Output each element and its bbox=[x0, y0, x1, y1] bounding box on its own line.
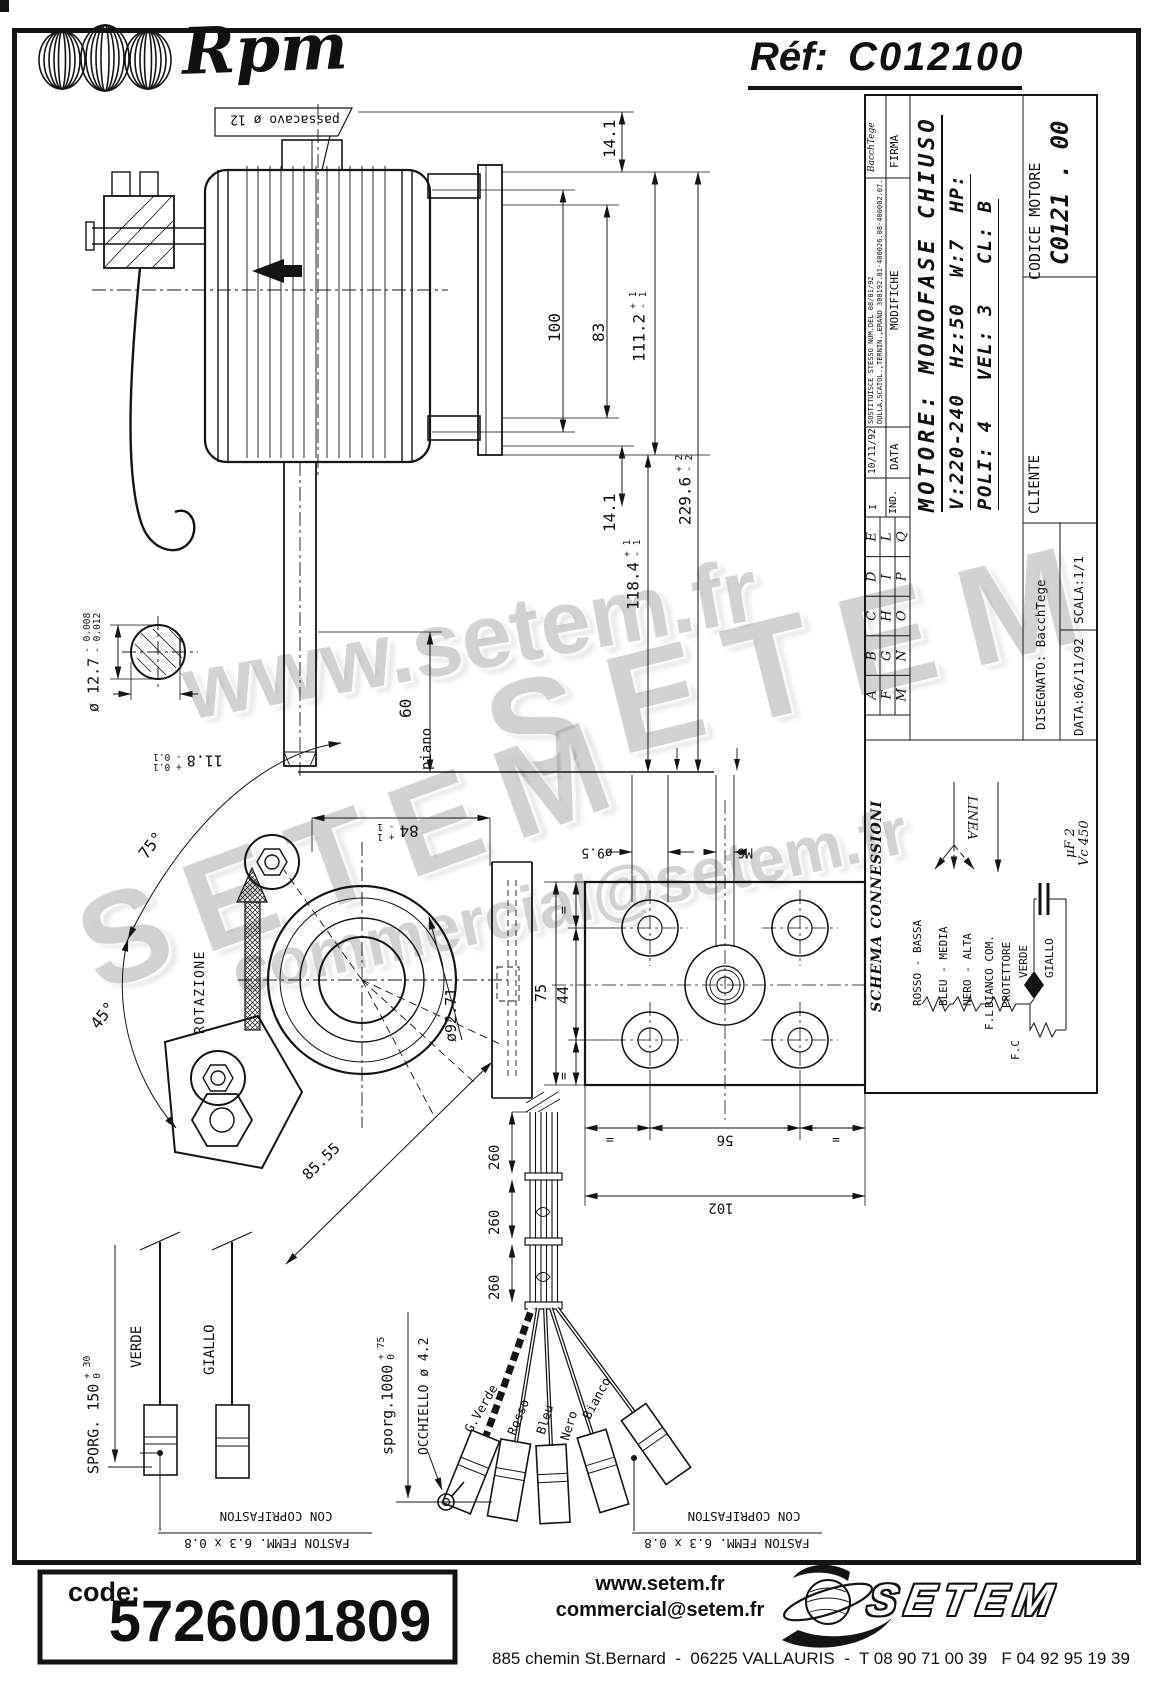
motor-title-line: MOTORE: MONOFASE CHIUSO bbox=[916, 115, 943, 512]
coprifaston-right: CON COPRIFASTON bbox=[664, 1510, 824, 1523]
dim-shaft-flat: 11.8+ 0.1- 0.1 bbox=[140, 750, 236, 770]
modifiche-note-line1: SOSTITUISCE STESSO NUM.DEL 08/01/92 bbox=[867, 180, 876, 424]
rpm-logo-coils bbox=[39, 25, 171, 91]
faston-spec-left: FASTON FEMM. 6.3 x 0.8 bbox=[158, 1537, 376, 1550]
schema-wire-rosso: ROSSO - BASSA bbox=[912, 920, 924, 1006]
footer-address: 885 chemin St.Bernard - 06225 VALLAURIS … bbox=[492, 1650, 1112, 1668]
code-value: 5726001809 bbox=[100, 1592, 440, 1653]
leads-right-bundle bbox=[396, 1092, 822, 1533]
dim-229-6-value: 229.6 bbox=[676, 477, 695, 525]
index-letter: O bbox=[883, 608, 923, 623]
dim-sporg-1000: sporg.1000+ 750 bbox=[378, 1337, 398, 1455]
firma-signature: BacchTege bbox=[868, 122, 877, 172]
dim-102: 102 bbox=[690, 1200, 752, 1215]
rotazione-label: ROTAZIONE bbox=[194, 950, 208, 1034]
disegnato-label: DISEGNATO: BacchTege bbox=[1034, 579, 1047, 730]
schema-title: SCHEMA CONNESSIONI bbox=[870, 800, 885, 1012]
modifiche-note: SOSTITUISCE STESSO NUM.DEL 08/01/92 DULL… bbox=[867, 180, 884, 424]
dim-dia-92-71: ø92.71 bbox=[444, 988, 460, 1042]
footer-email: commercial@setem.fr bbox=[555, 1600, 765, 1621]
schema-verde: VERDE bbox=[1018, 945, 1030, 978]
tol-plus: + 0.1 bbox=[153, 761, 182, 771]
dim-75-plate: 75 bbox=[534, 984, 550, 1002]
occhiello-label: OCCHIELLO ø 4.2 bbox=[418, 1338, 432, 1455]
cliente-label: CLIENTE bbox=[1028, 455, 1043, 514]
dim-84: 84+ 1- 1 bbox=[352, 820, 444, 840]
piano-label: piano bbox=[420, 728, 435, 770]
coprifaston-left: CON COPRIFASTON bbox=[196, 1510, 356, 1523]
ind-value: I bbox=[869, 504, 880, 510]
footer-site: www.setem.fr bbox=[580, 1574, 740, 1595]
tol-minus: - 1 bbox=[639, 292, 649, 309]
schema-protettore: PROTETTORE bbox=[1001, 942, 1013, 1008]
setem-logo-text: SETEM bbox=[864, 1578, 1064, 1624]
dim-118-4: 118.4+ 1- 1 bbox=[624, 540, 644, 610]
tol-minus: - 0.012 bbox=[93, 613, 103, 653]
schema-fl-label: F.L bbox=[984, 1010, 996, 1030]
dim-111-2-value: 111.2 bbox=[630, 314, 649, 362]
faston-spec-right: FASTON FEMM. 6.3 x 0.8 bbox=[618, 1537, 836, 1550]
codice-motore-label: CODICE MOTORE bbox=[1028, 163, 1044, 280]
ind-label: IND. bbox=[889, 490, 900, 514]
firma-label: FIRMA bbox=[889, 135, 901, 168]
dim-m6: M6 bbox=[710, 845, 780, 859]
dim-260-2: 260 bbox=[488, 1210, 503, 1235]
shaft-flat-value: 11.8 bbox=[187, 752, 223, 770]
linea-label: LINEA bbox=[964, 796, 978, 840]
index-letter-grid: E L Q D I P C H O B G N A F M bbox=[865, 517, 910, 715]
capacitor-uf: μF 2 bbox=[1064, 828, 1078, 858]
dim-60: 60 bbox=[398, 699, 415, 718]
tol-minus: - 2 bbox=[685, 455, 695, 472]
schema-wire-bleu: BLEU - MEDIA bbox=[938, 927, 950, 1006]
passacavo-callout: passacavo ø 12 bbox=[226, 112, 344, 126]
eq-mark-right: = bbox=[818, 1132, 854, 1146]
schema-wire-nero: NERO - ALTA bbox=[962, 933, 974, 1006]
wire-label-giallo: GIALLO bbox=[203, 1324, 218, 1375]
dim-260-1: 260 bbox=[488, 1145, 503, 1170]
dim-83: 83 bbox=[591, 323, 608, 342]
schema-fc-label: F.C bbox=[1010, 1040, 1022, 1060]
index-letter: Q bbox=[883, 529, 923, 544]
eq-mark-bottom: = bbox=[558, 1072, 572, 1080]
sporg-1000-value: sporg.1000 bbox=[379, 1365, 397, 1455]
codice-motore-value: C0121 . 00 bbox=[1048, 121, 1073, 266]
technical-drawing-sheet: www.setem.fr SETEM SETEM commercial@sete… bbox=[0, 0, 1154, 1683]
dim-44-plate: 44 bbox=[556, 986, 572, 1004]
motor-spec-line-2: POLI: 4 VEL: 3 CL: B bbox=[976, 199, 999, 510]
sporg-150-value: SPORG. 150 bbox=[85, 1384, 103, 1474]
tol-minus: 0 bbox=[387, 1337, 397, 1360]
dim-shaft-diameter: ø 12.7- 0.008- 0.012 bbox=[84, 613, 104, 712]
schema-giallo: GIALLO bbox=[1044, 938, 1056, 978]
dim-dia-9-5: ø9.5 bbox=[570, 845, 624, 859]
ref-value: C012100 bbox=[848, 36, 1024, 78]
dim-84-value: 84 bbox=[399, 822, 418, 841]
tol-plus: + 1 bbox=[377, 831, 394, 841]
index-letter: M bbox=[883, 688, 923, 703]
data-label: DATA bbox=[889, 444, 901, 471]
dim-229-6: 229.6+ 2- 2 bbox=[676, 455, 696, 525]
dim-sporg-150: SPORG. 150+ 300 bbox=[84, 1356, 104, 1474]
data-bottom-label: DATA:06/11/92 bbox=[1072, 638, 1085, 736]
schema-wire-bianco: BIANCO COM. bbox=[984, 935, 996, 1008]
dim-100: 100 bbox=[547, 313, 564, 342]
modifiche-note-line2: DULLA,SCATOL.,TERNIN.,ERAND 300192.01-40… bbox=[876, 180, 885, 424]
leads-left bbox=[108, 1232, 372, 1533]
tol-minus: - 0.1 bbox=[153, 751, 182, 761]
scala-label: SCALA:1/1 bbox=[1072, 556, 1085, 624]
eq-mark-left: = bbox=[592, 1132, 628, 1146]
motor-spec-line-1: V:220-240 Hz:50 W:7 HP: bbox=[948, 174, 971, 510]
dim-14-1-bottom: 14.1 bbox=[602, 493, 619, 532]
ref-label: Réf: bbox=[750, 36, 828, 78]
eq-mark-top: = bbox=[558, 906, 572, 914]
wire-label-verde: VERDE bbox=[130, 1326, 145, 1368]
dim-14-1-top: 14.1 bbox=[602, 119, 619, 158]
modifiche-label: MODIFICHE bbox=[889, 270, 901, 330]
shaft-section-detail bbox=[110, 616, 198, 700]
index-letter: P bbox=[883, 569, 923, 584]
dim-111-2: 111.2+ 1- 1 bbox=[630, 292, 650, 362]
dim-56: 56 bbox=[700, 1132, 750, 1147]
tol-minus: 0 bbox=[93, 1356, 103, 1379]
revision-date: 10/11/92 bbox=[868, 428, 878, 474]
tol-minus: - 1 bbox=[633, 540, 643, 557]
dim-118-4-value: 118.4 bbox=[624, 562, 643, 610]
rpm-logo-text: Rpm bbox=[181, 13, 349, 86]
shaft-dia-value: ø 12.7 bbox=[85, 658, 103, 712]
capacitor-vc: Vc 450 bbox=[1078, 820, 1092, 866]
index-letter: N bbox=[883, 648, 923, 663]
tol-minus: - 1 bbox=[377, 821, 394, 831]
dim-260-3: 260 bbox=[488, 1275, 503, 1300]
